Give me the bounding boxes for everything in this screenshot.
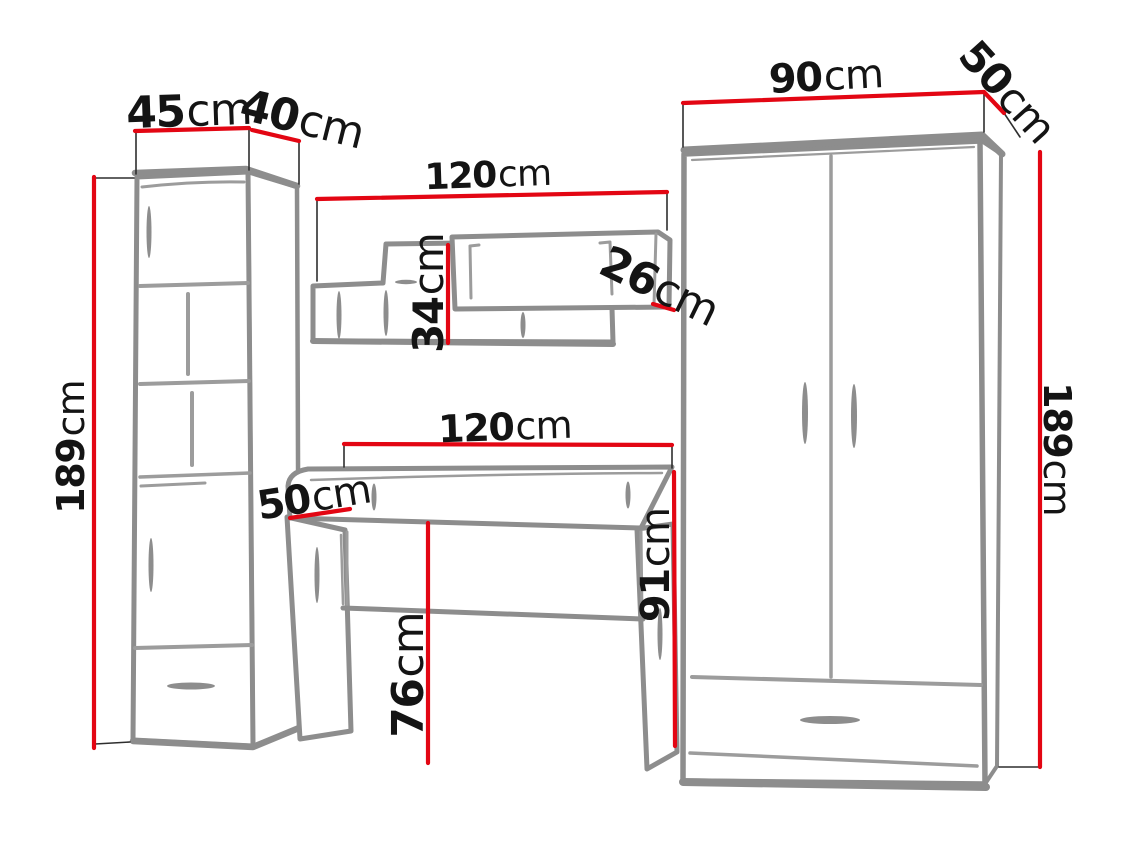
shelf-handle-3 bbox=[521, 312, 526, 338]
shelf-handle-2 bbox=[384, 290, 389, 336]
dim-label-desk-clearance: 76cm bbox=[387, 612, 431, 737]
desk-apron-sides bbox=[347, 531, 642, 617]
dim-label-wardrobe-height: 189cm bbox=[1038, 382, 1076, 516]
dim-label-desk-width: 120cm bbox=[438, 406, 573, 449]
cabinet-side-face bbox=[248, 172, 299, 746]
dim-value: 90 bbox=[768, 54, 823, 103]
shelf-handle-1 bbox=[337, 291, 342, 339]
wardrobe-front-face bbox=[683, 141, 985, 784]
dim-unit: cm bbox=[497, 153, 552, 196]
tall-cabinet-drawing bbox=[133, 169, 299, 747]
dim-value: 34 bbox=[404, 297, 453, 353]
dim-value: 45 bbox=[125, 86, 185, 139]
dim-value: 76 bbox=[383, 680, 434, 738]
dim-value: 120 bbox=[424, 155, 497, 198]
wardrobe-bottom-edge bbox=[683, 782, 986, 787]
dim-unit: cm bbox=[308, 466, 374, 521]
dim-unit: cm bbox=[49, 380, 93, 436]
dim-unit: cm bbox=[404, 233, 453, 295]
wardrobe-handle-left bbox=[802, 382, 808, 444]
dim-unit: cm bbox=[383, 612, 434, 677]
guide-line bbox=[95, 742, 130, 744]
dim-value: 189 bbox=[1035, 382, 1079, 457]
dim-label-shelf-height: 34cm bbox=[408, 233, 450, 353]
dim-label-wardrobe-width: 90cm bbox=[768, 54, 884, 100]
wardrobe-drawer-handle bbox=[800, 716, 860, 724]
dim-label-desk-height: 91cm bbox=[636, 508, 676, 622]
desk-drawer-handle-right bbox=[626, 482, 631, 509]
dim-label-shelf-width: 120cm bbox=[424, 156, 552, 196]
dim-unit: cm bbox=[515, 403, 573, 449]
cabinet-lower-door-handle bbox=[149, 538, 154, 592]
dim-unit: cm bbox=[633, 508, 679, 567]
cabinet-drawer-handle bbox=[167, 683, 215, 690]
dim-value: 50 bbox=[254, 476, 313, 530]
dim-unit: cm bbox=[823, 51, 885, 100]
furniture-dimension-diagram: 45cm 40cm 189cm 120cm 34cm 26cm 120cm 50… bbox=[0, 0, 1134, 851]
wardrobe-handle-right bbox=[851, 384, 857, 448]
wardrobe-drawing bbox=[683, 135, 1002, 787]
dim-label-cabinet-width: 45cm bbox=[126, 88, 253, 136]
dim-unit: cm bbox=[1035, 459, 1079, 515]
dim-value: 189 bbox=[49, 439, 93, 514]
shelf-lower-bottom-edge bbox=[313, 341, 613, 344]
cabinet-door-handle bbox=[147, 206, 152, 258]
dim-value: 91 bbox=[633, 569, 679, 622]
desk-left-leg-sliver bbox=[315, 547, 320, 603]
dim-label-cabinet-height: 189cm bbox=[52, 380, 90, 514]
dim-value: 120 bbox=[437, 405, 514, 452]
